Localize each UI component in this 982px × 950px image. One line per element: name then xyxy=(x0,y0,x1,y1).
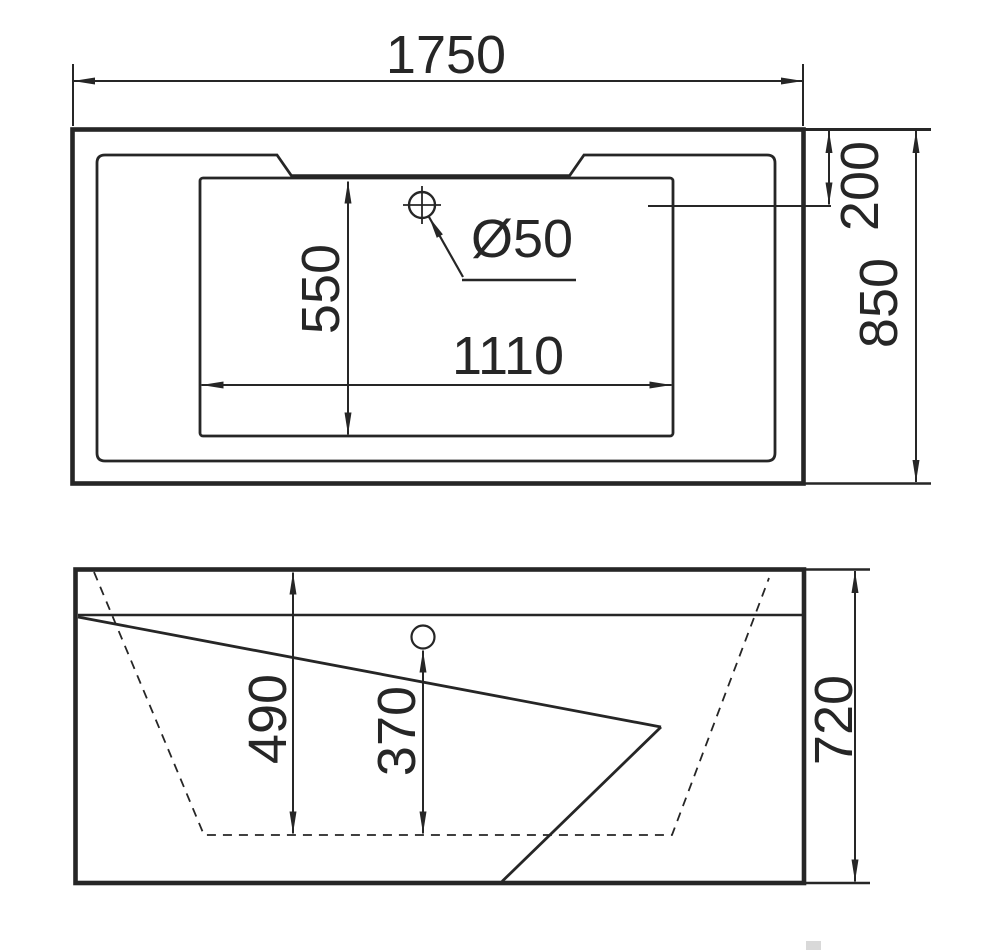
drain-circle xyxy=(412,626,435,649)
drain-crosshair-icon xyxy=(403,186,441,224)
dim-label-overall-width: 1750 xyxy=(386,25,506,85)
basin-outline xyxy=(200,178,673,436)
dim-label-basin-length: 1110 xyxy=(452,326,564,386)
drawing-svg: 1750 Ø50 200 850 550 1110 xyxy=(0,0,982,950)
tub-outer-outline xyxy=(73,130,804,484)
drain-leader-line xyxy=(429,217,463,277)
dim-label-drain-diameter: Ø50 xyxy=(471,209,573,269)
dim-label-overall-depth: 850 xyxy=(849,258,909,348)
interior-end-slope-line xyxy=(502,727,661,882)
dim-label-overall-height: 720 xyxy=(804,675,864,765)
top-view: 1750 Ø50 200 850 550 1110 xyxy=(73,25,932,484)
dim-label-rim-to-drain-offset: 200 xyxy=(830,141,890,231)
dim-label-inner-depth: 490 xyxy=(238,674,298,764)
scan-artifact xyxy=(806,941,821,950)
hidden-basin-profile xyxy=(94,572,769,835)
side-outer-outline xyxy=(76,570,805,884)
dim-label-drain-height: 370 xyxy=(367,686,427,776)
bathtub-technical-drawing: 1750 Ø50 200 850 550 1110 xyxy=(0,0,982,950)
dim-label-basin-width: 550 xyxy=(291,244,351,334)
side-section-view: 490 370 720 xyxy=(76,570,871,950)
